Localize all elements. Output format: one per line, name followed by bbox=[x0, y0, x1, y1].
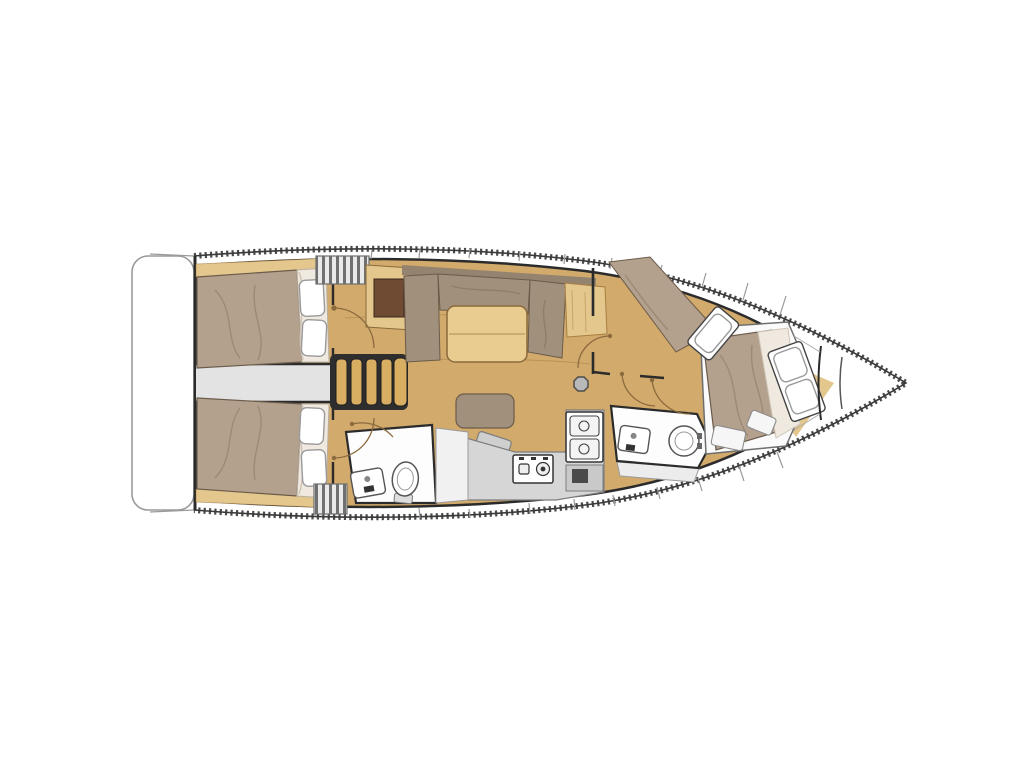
toilet-hinge bbox=[697, 443, 702, 449]
shower-panel bbox=[436, 428, 468, 503]
corridor-floor bbox=[196, 364, 333, 402]
door-hinge bbox=[332, 306, 336, 310]
pillow bbox=[301, 449, 327, 486]
forward-head bbox=[611, 406, 711, 482]
aft-head bbox=[346, 425, 468, 504]
aft-cabin-port bbox=[196, 258, 333, 368]
berth-mattress bbox=[197, 398, 302, 496]
swim-platform bbox=[132, 256, 194, 510]
mast-post bbox=[574, 377, 588, 391]
stove-burner-center bbox=[541, 467, 546, 472]
door-hinge bbox=[350, 422, 354, 426]
faucet bbox=[626, 444, 636, 451]
stove-knob bbox=[531, 457, 536, 460]
stair-landing bbox=[394, 358, 407, 406]
sink-bowl bbox=[570, 439, 599, 459]
toilet-hinge bbox=[697, 433, 702, 439]
washbasin bbox=[617, 425, 650, 454]
bench-seat bbox=[456, 394, 514, 428]
stove-knob bbox=[543, 457, 548, 460]
stair-step bbox=[381, 359, 392, 405]
door-hinge bbox=[608, 334, 612, 338]
berth-mattress bbox=[197, 270, 302, 368]
fridge-front bbox=[572, 469, 588, 483]
stair-step bbox=[366, 359, 377, 405]
washbasin bbox=[350, 467, 386, 498]
basin bbox=[350, 467, 386, 498]
toilet-bowl bbox=[669, 426, 699, 456]
stove-knob bbox=[519, 457, 524, 460]
transom-platform bbox=[132, 254, 194, 512]
stair-step bbox=[351, 359, 362, 405]
settee-cushion-right bbox=[528, 280, 566, 358]
corridor bbox=[196, 364, 333, 402]
yacht-floor-plan bbox=[0, 0, 1024, 768]
door-hinge bbox=[332, 456, 336, 460]
settee-cushion-left bbox=[404, 274, 440, 362]
floor-plan-canvas bbox=[0, 0, 1024, 768]
pillow bbox=[301, 319, 327, 356]
sink-bowl bbox=[570, 416, 599, 436]
stove-burner-square bbox=[519, 464, 529, 474]
cockpit-grate bbox=[316, 256, 369, 284]
locker-grate bbox=[314, 484, 347, 514]
stair-step bbox=[336, 359, 347, 405]
locker-door bbox=[374, 279, 404, 317]
pillow bbox=[299, 279, 325, 316]
door-hinge bbox=[620, 372, 624, 376]
aft-cabin-starboard bbox=[196, 398, 347, 514]
door-hinge bbox=[650, 378, 654, 382]
pillow bbox=[299, 407, 325, 444]
